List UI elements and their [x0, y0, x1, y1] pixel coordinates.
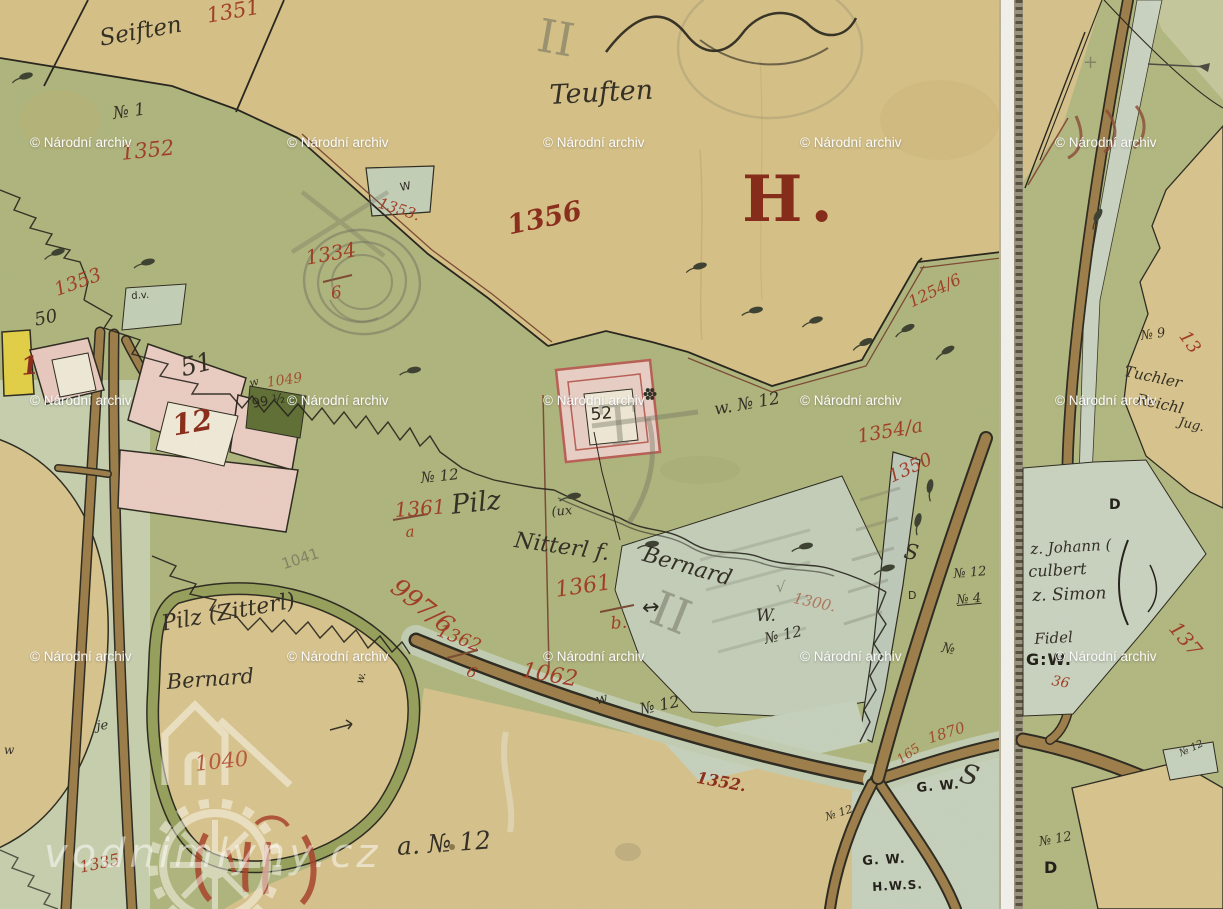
paper-grain-overlay — [0, 0, 1223, 909]
map-artwork — [0, 0, 1223, 909]
section-letter: H. — [742, 168, 841, 232]
cadastral-map-scan: 1351Seiften№ 1135213531353.W13346d.v.135… — [0, 0, 1223, 909]
logo-watermark-text: vodnimlyny.cz — [44, 834, 381, 874]
